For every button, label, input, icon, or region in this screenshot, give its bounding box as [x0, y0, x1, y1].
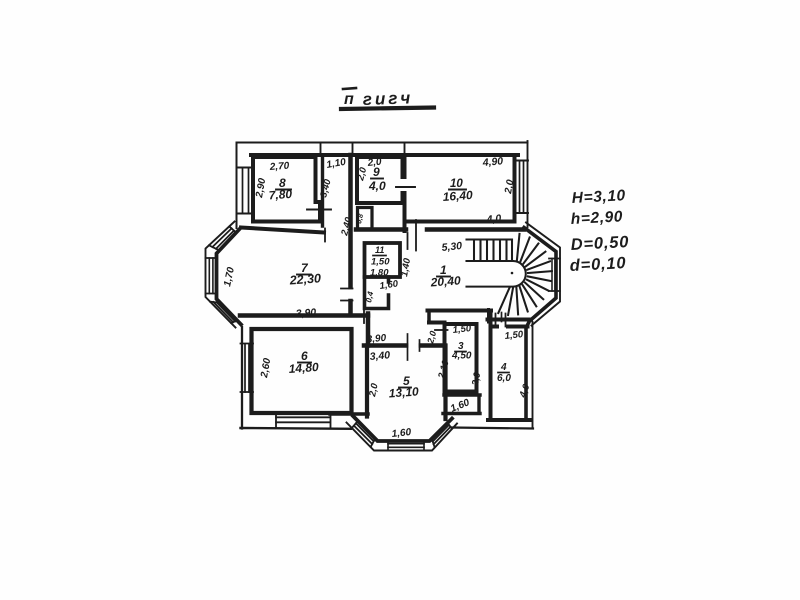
svg-text:2,0: 2,0 [425, 330, 438, 346]
svg-text:h=2,90: h=2,90 [570, 208, 623, 228]
svg-text:1,70: 1,70 [222, 266, 237, 288]
svg-text:4: 4 [500, 362, 507, 373]
svg-text:0,8: 0,8 [356, 213, 365, 224]
svg-text:0,4: 0,4 [364, 290, 375, 303]
svg-text:1,50: 1,50 [452, 323, 472, 336]
svg-text:2,0: 2,0 [470, 371, 483, 388]
svg-text:11: 11 [375, 245, 384, 255]
svg-text:2,0: 2,0 [367, 382, 381, 399]
svg-text:2,60: 2,60 [259, 357, 273, 379]
svg-text:2,10: 2,10 [436, 358, 452, 380]
svg-text:1,50: 1,50 [504, 329, 524, 342]
svg-text:2,90: 2,90 [254, 177, 268, 199]
svg-text:1,60: 1,60 [391, 427, 412, 440]
svg-text:9: 9 [373, 165, 380, 179]
svg-text:1,40: 1,40 [399, 257, 413, 278]
svg-text:1,10: 1,10 [326, 157, 348, 171]
svg-text:п: п [344, 91, 354, 108]
svg-text:3,90: 3,90 [295, 307, 316, 320]
svg-text:4,0: 4,0 [485, 213, 502, 227]
svg-text:1,50: 1,50 [371, 257, 390, 268]
svg-text:1,80: 1,80 [370, 268, 389, 279]
svg-text:d=0,10: d=0,10 [569, 254, 627, 275]
svg-text:D=0,50: D=0,50 [570, 233, 629, 254]
svg-text:5,30: 5,30 [441, 240, 463, 254]
svg-text:4,0: 4,0 [368, 179, 386, 193]
svg-text:3,40: 3,40 [318, 177, 334, 198]
svg-text:3,90: 3,90 [366, 333, 387, 346]
svg-text:6,0: 6,0 [497, 373, 511, 384]
svg-text:3,40: 3,40 [369, 349, 391, 363]
svg-text:H=3,10: H=3,10 [571, 187, 626, 207]
svg-text:4,0: 4,0 [517, 382, 532, 400]
svg-text:2,70: 2,70 [268, 161, 290, 173]
svg-text:1,60: 1,60 [379, 278, 400, 292]
svg-text:4,90: 4,90 [481, 155, 504, 169]
